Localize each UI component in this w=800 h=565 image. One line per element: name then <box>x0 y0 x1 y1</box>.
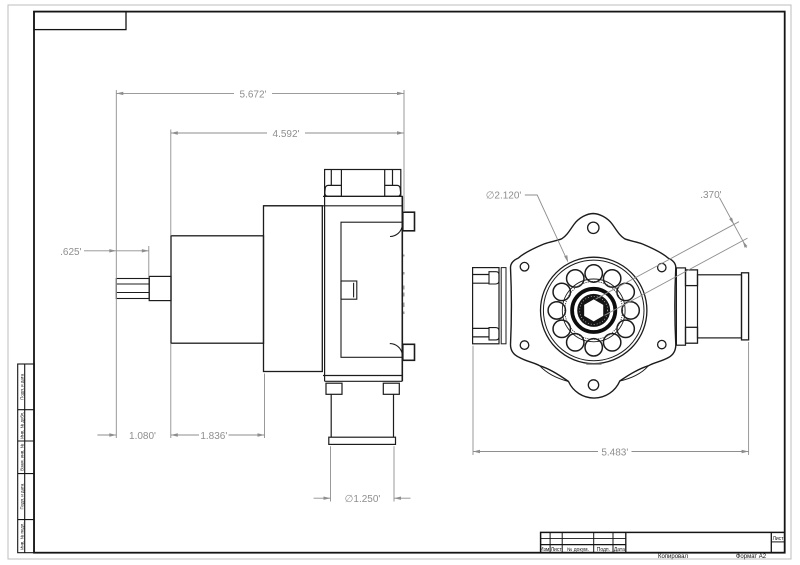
svg-text:1.080': 1.080' <box>129 431 156 442</box>
svg-text:.370': .370' <box>700 190 721 201</box>
svg-text:Формат А2: Формат А2 <box>736 554 767 560</box>
svg-text:4.592': 4.592' <box>273 129 300 140</box>
svg-text:№ докум.: № докум. <box>567 547 589 553</box>
svg-text:Копировал: Копировал <box>658 554 689 560</box>
svg-text:Подп. и дата: Подп. и дата <box>19 483 24 509</box>
svg-text:Инв. № подл.: Инв. № подл. <box>19 522 24 549</box>
svg-text:1.836': 1.836' <box>200 431 227 442</box>
svg-text:Изм.: Изм. <box>540 547 551 553</box>
svg-text:Взам. инв. №: Взам. инв. № <box>19 443 24 470</box>
svg-text:.625': .625' <box>60 247 81 258</box>
svg-text:5.483': 5.483' <box>601 447 628 458</box>
svg-text:Подп. и дата: Подп. и дата <box>19 373 24 399</box>
svg-text:Дата: Дата <box>614 547 625 553</box>
svg-text:∅1.250': ∅1.250' <box>345 494 381 505</box>
svg-text:∅2.120': ∅2.120' <box>486 191 522 202</box>
svg-text:Инв. № дубл.: Инв. № дубл. <box>19 412 24 439</box>
svg-text:5.672': 5.672' <box>240 89 267 100</box>
svg-text:Лист: Лист <box>773 536 785 542</box>
svg-text:Подп.: Подп. <box>597 547 610 553</box>
svg-text:Лист: Лист <box>551 547 563 553</box>
